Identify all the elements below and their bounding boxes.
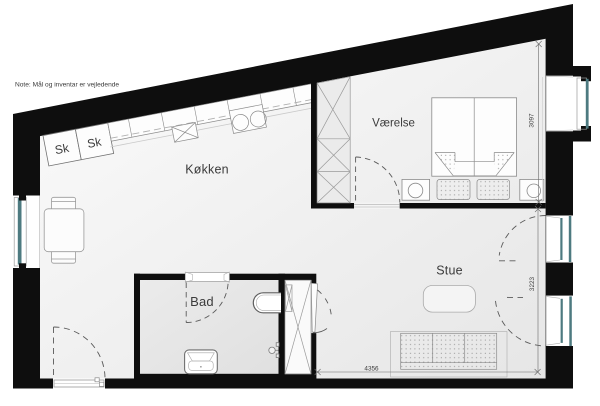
svg-text:Bad: Bad [190, 294, 214, 309]
svg-text:Note: Mål og inventar er vejle: Note: Mål og inventar er vejledende [15, 81, 119, 89]
svg-text:Køkken: Køkken [185, 163, 229, 177]
svg-text:Værelse: Værelse [372, 118, 415, 130]
svg-text:3223: 3223 [529, 276, 536, 291]
svg-text:3097: 3097 [529, 113, 536, 128]
svg-text:Stue: Stue [436, 263, 463, 277]
svg-text:4356: 4356 [364, 365, 379, 372]
